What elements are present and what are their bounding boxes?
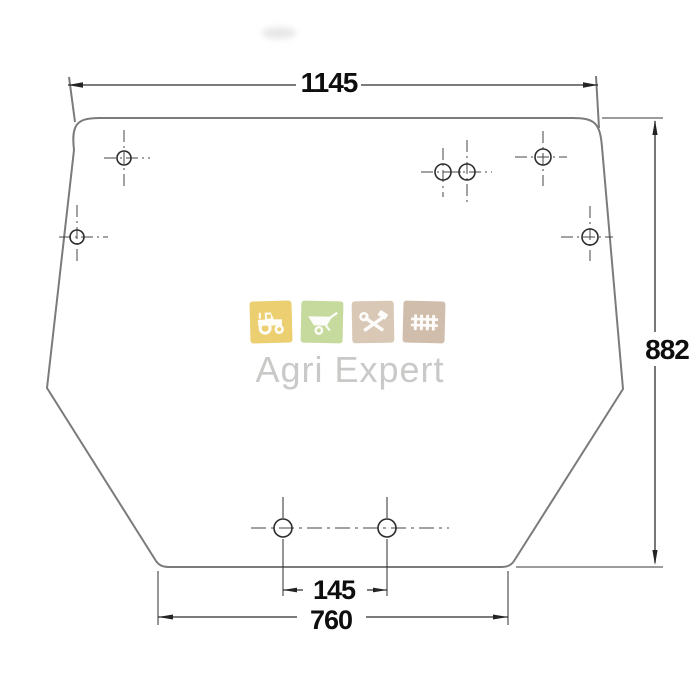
edge-extension-lines [69, 76, 663, 567]
glass-outline [47, 118, 623, 567]
dim-bottom-width-label: 760 [300, 607, 362, 634]
dimension-lines [68, 85, 655, 625]
dim-hole-spacing-label: 145 [303, 577, 365, 604]
hole-centerlines [59, 130, 613, 528]
mounting-holes [70, 149, 598, 537]
dimension-arrowheads [68, 82, 658, 619]
dim-right-height-label: 882 [639, 336, 695, 364]
drawing-canvas: Agri Expert [0, 0, 700, 700]
dim-top-width-label: 1145 [293, 69, 365, 97]
